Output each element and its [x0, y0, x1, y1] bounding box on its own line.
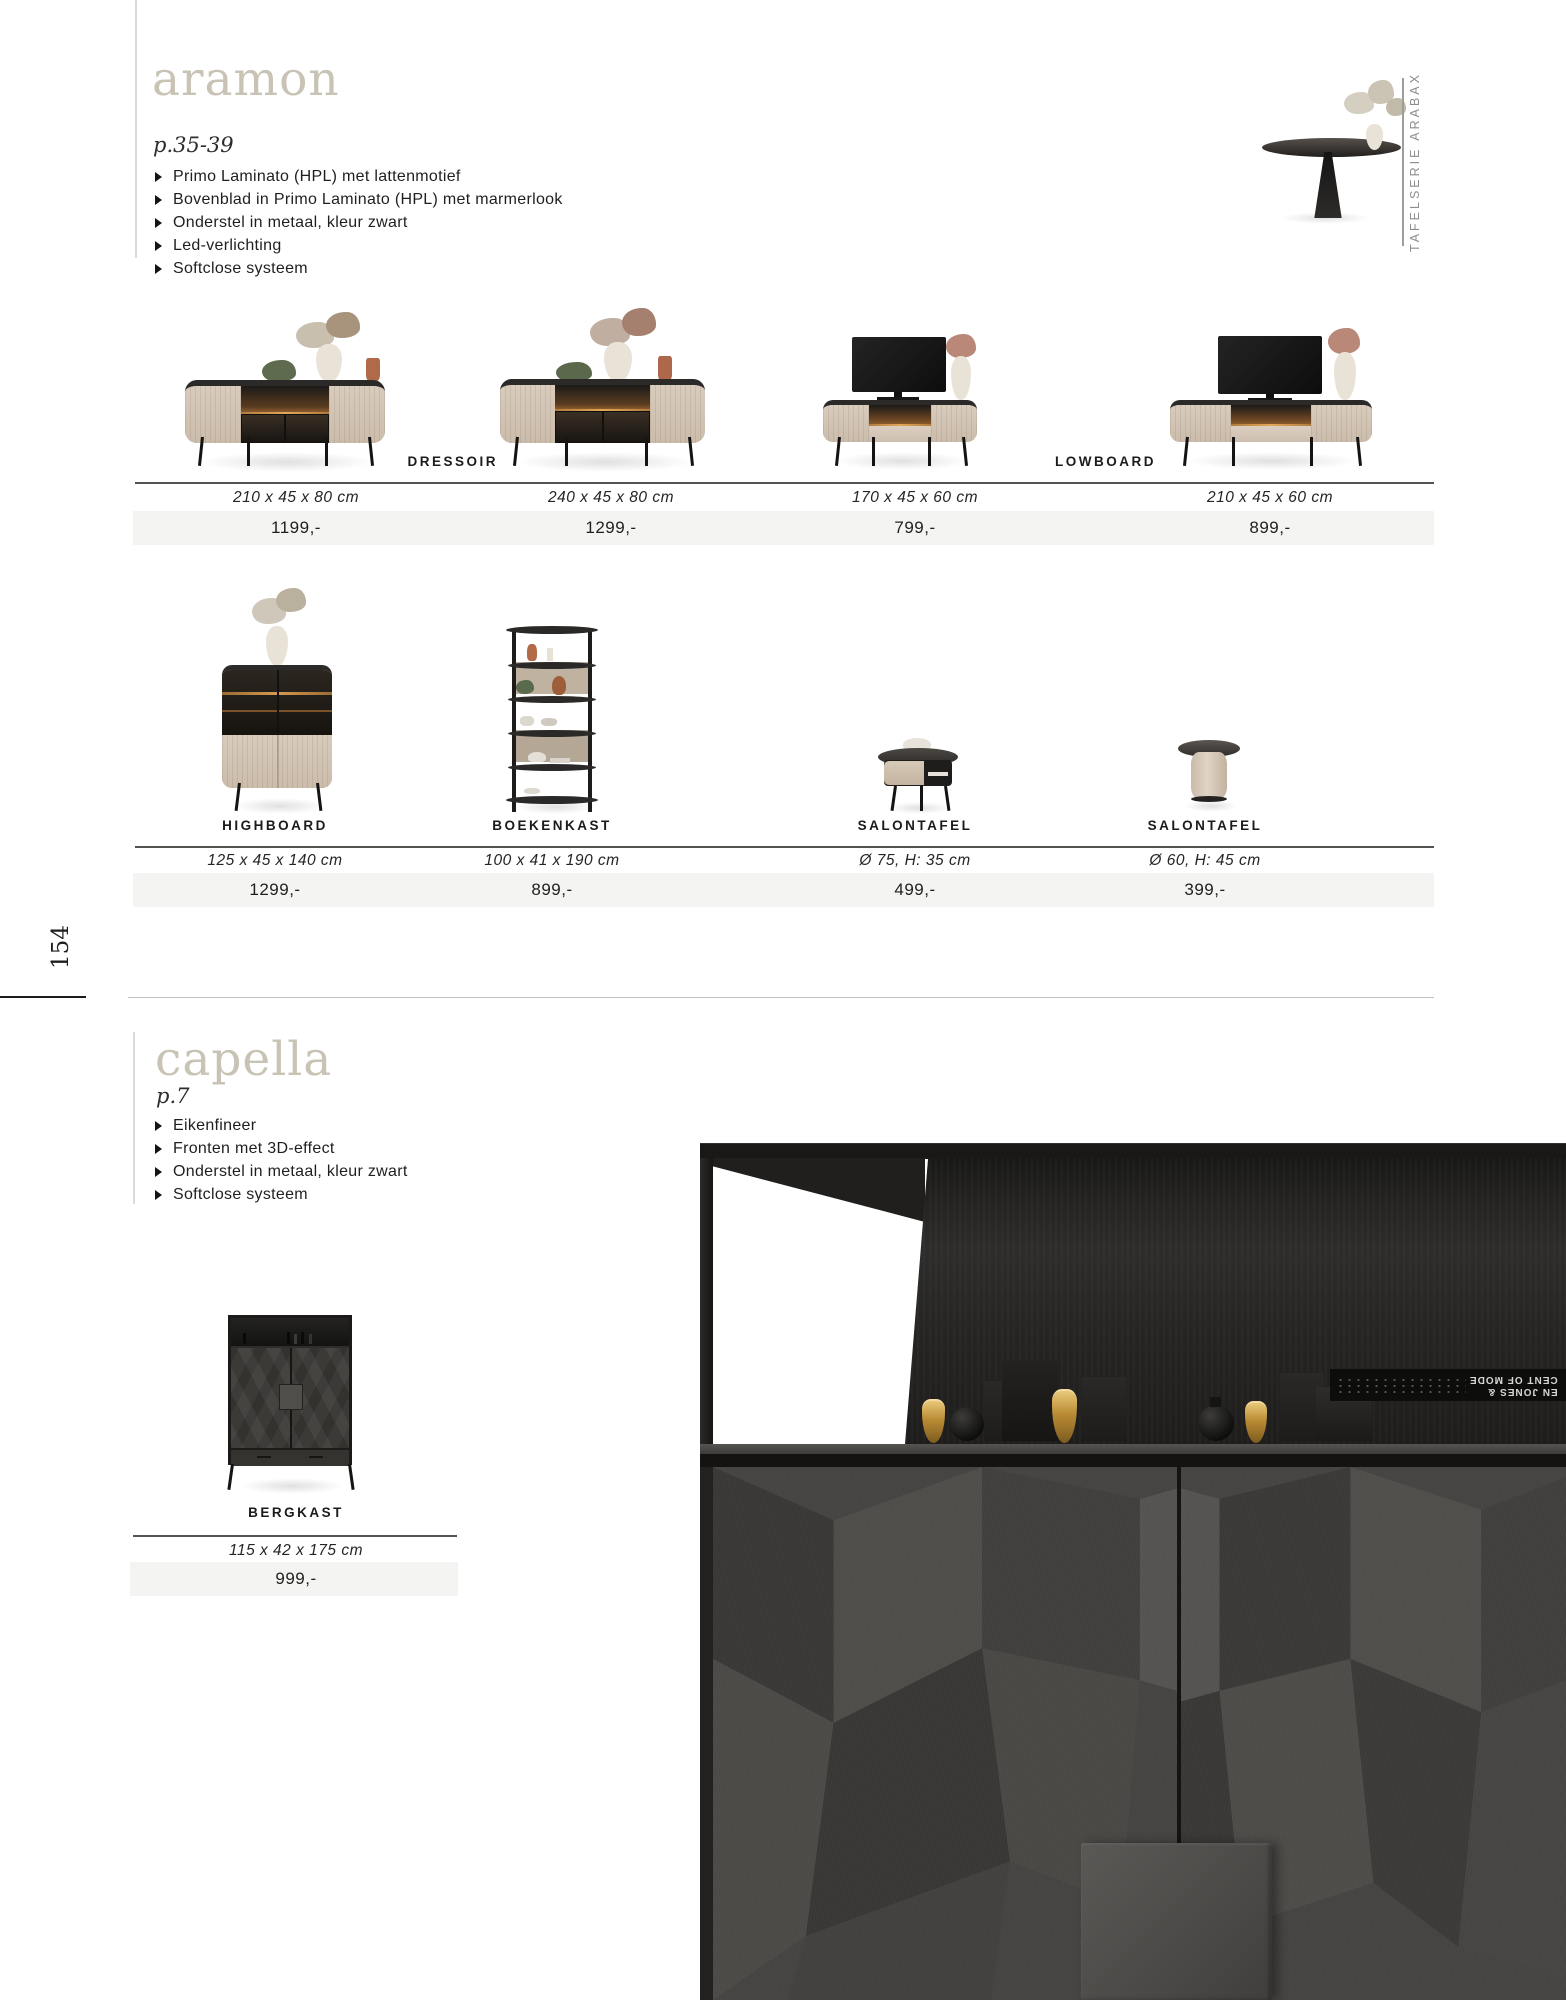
product-label: BOEKENKAST: [472, 818, 632, 833]
product-dims: 210 x 45 x 60 cm: [1160, 489, 1380, 507]
product-price: 399,-: [1095, 873, 1315, 907]
table-leg: [1310, 152, 1346, 218]
capella-page-ref: p.7: [156, 1084, 189, 1108]
capella-detail-photo: EN JONES & CENT OF MODE: [700, 1143, 1566, 2000]
table-foot: [1191, 796, 1227, 802]
product-dims: 115 x 42 x 175 cm: [186, 1542, 406, 1560]
product-price: 1299,-: [165, 873, 385, 907]
book-spine-line2: CENT OF MODE: [1469, 1373, 1558, 1385]
cabinet-body: [500, 379, 705, 443]
product-price: 1199,-: [186, 511, 406, 545]
cabinet-leg: [247, 437, 250, 466]
section-divider-vertical: [135, 0, 137, 258]
feature-item: Fronten met 3D-effect: [155, 1137, 408, 1160]
feature-item: Eikenfineer: [155, 1114, 408, 1137]
black-block: [1002, 1361, 1058, 1441]
feature-text: Softclose systeem: [173, 1186, 308, 1204]
product-dims: 125 x 45 x 140 cm: [165, 852, 385, 870]
bullet-triangle-icon: [155, 172, 162, 182]
photo-shelf-shadow: [700, 1454, 1566, 1467]
cabinet-body: [823, 400, 977, 442]
aramon-feature-list: Primo Laminato (HPL) met lattenmotief Bo…: [155, 165, 563, 280]
catalog-page: aramon p.35-39 Primo Laminato (HPL) met …: [0, 0, 1566, 2000]
product-price: 999,-: [186, 1562, 406, 1596]
feature-text: Eikenfineer: [173, 1117, 256, 1135]
shelf: [506, 796, 598, 804]
product-dims: 240 x 45 x 80 cm: [501, 489, 721, 507]
product-dims: 210 x 45 x 80 cm: [186, 489, 406, 507]
feature-item: Onderstel in metaal, kleur zwart: [155, 211, 563, 234]
photo-shelf-underside: [713, 1158, 925, 1222]
product-price: 799,-: [805, 511, 1025, 545]
cabinet-body: [185, 380, 385, 443]
group-label-dressoir: DRESSOIR: [378, 454, 498, 469]
decor-bowl: [541, 718, 557, 726]
bergkast-divider-line: [133, 1535, 457, 1537]
table-body: [884, 760, 952, 786]
decor-book: [550, 758, 570, 763]
product-price: 499,-: [805, 873, 1025, 907]
book-spine-line1: EN JONES &: [1469, 1385, 1558, 1397]
photo-top-frame: [700, 1143, 1566, 1159]
vase: [266, 626, 288, 666]
section-title-aramon: aramon: [152, 52, 340, 107]
bullet-triangle-icon: [155, 1121, 162, 1131]
vase: [316, 344, 342, 382]
shelf-post: [588, 630, 592, 812]
dried-flowers: [946, 334, 976, 358]
photo-left-frame-lower: [700, 1467, 713, 2000]
cabinet-leg: [872, 437, 875, 466]
shelf: [508, 730, 596, 737]
vase-neck: [1210, 1397, 1221, 1407]
patterned-doors: [231, 1348, 349, 1448]
feature-text: Led-verlichting: [173, 237, 282, 255]
door-handle: [279, 1384, 303, 1410]
product-price: 1299,-: [501, 511, 721, 545]
table-leg: [920, 786, 923, 811]
dried-flowers: [622, 308, 656, 336]
table-column: [1191, 752, 1227, 799]
black-block: [1082, 1377, 1126, 1441]
decor-plate: [524, 788, 540, 794]
feature-text: Primo Laminato (HPL) met lattenmotief: [173, 168, 461, 186]
feature-text: Bovenblad in Primo Laminato (HPL) met ma…: [173, 191, 563, 209]
row1-divider-line: [135, 482, 1434, 484]
feature-text: Softclose systeem: [173, 260, 308, 278]
product-dims: 170 x 45 x 60 cm: [805, 489, 1025, 507]
product-dims: 100 x 41 x 190 cm: [442, 852, 662, 870]
drawer: [231, 1448, 349, 1466]
frame-leg: [227, 1464, 234, 1490]
plant: [262, 360, 296, 382]
open-compartment: [231, 1318, 349, 1348]
product-label: SALONTAFEL: [1125, 818, 1285, 833]
black-vase: [1198, 1405, 1234, 1441]
cabinet-leg: [1232, 437, 1235, 466]
feature-item: Bovenblad in Primo Laminato (HPL) met ma…: [155, 188, 563, 211]
feature-item: Led-verlichting: [155, 234, 563, 257]
cabinet-body: [1170, 400, 1372, 442]
page-number: 154: [48, 903, 74, 969]
margin-rule-black: [0, 996, 86, 998]
bullet-triangle-icon: [155, 1190, 162, 1200]
product-price: 899,-: [442, 873, 662, 907]
dried-flowers: [1328, 328, 1360, 354]
shelf-post: [512, 630, 516, 812]
vase: [951, 356, 971, 400]
book: EN JONES & CENT OF MODE: [1330, 1369, 1566, 1401]
decor-vase: [527, 644, 537, 661]
decor-shell: [528, 752, 546, 762]
frame-post: [349, 1315, 352, 1465]
shelf: [508, 662, 596, 669]
feature-item: Onderstel in metaal, kleur zwart: [155, 1160, 408, 1183]
capella-feature-list: Eikenfineer Fronten met 3D-effect Onders…: [155, 1114, 408, 1206]
tv-screen: [1218, 336, 1322, 394]
product-dims: Ø 60, H: 45 cm: [1095, 852, 1315, 870]
row2-divider-line: [135, 846, 1434, 848]
cabinet-leg: [645, 437, 648, 466]
aramon-page-ref: p.35-39: [153, 133, 234, 157]
frame-leg: [348, 1464, 355, 1490]
photo-shelf-edge: [700, 1444, 1566, 1454]
feature-text: Onderstel in metaal, kleur zwart: [173, 214, 408, 232]
product-label: HIGHBOARD: [195, 818, 355, 833]
cabinet-leg: [1310, 437, 1313, 466]
flower-pot: [658, 356, 672, 381]
cabinet-leg: [928, 437, 931, 466]
feature-item: Primo Laminato (HPL) met lattenmotief: [155, 165, 563, 188]
group-label-lowboard: LOWBOARD: [1055, 454, 1175, 469]
bullet-triangle-icon: [155, 195, 162, 205]
vase: [604, 342, 632, 382]
bullet-triangle-icon: [155, 1167, 162, 1177]
cabinet-leg: [325, 437, 328, 466]
feature-item: Softclose systeem: [155, 1183, 408, 1206]
section-divider-vertical: [133, 1032, 135, 1204]
cabinet-leg: [565, 437, 568, 466]
feature-text: Onderstel in metaal, kleur zwart: [173, 1163, 408, 1181]
decor-candle: [547, 648, 553, 661]
photo-left-frame: [700, 1158, 713, 1444]
decor-plant: [516, 680, 534, 694]
product-price: 899,-: [1160, 511, 1380, 545]
tafelserie-label: TAFELSERIE ARABAX: [1408, 72, 1422, 252]
bullet-triangle-icon: [155, 241, 162, 251]
black-sphere: [950, 1407, 984, 1441]
shelf: [506, 626, 598, 634]
feature-item: Softclose systeem: [155, 257, 563, 280]
product-label: SALONTAFEL: [835, 818, 995, 833]
product-dims: Ø 75, H: 35 cm: [805, 852, 1025, 870]
shelf: [508, 764, 596, 771]
tv-screen: [852, 337, 946, 392]
decor-copper-vase: [552, 676, 566, 695]
vase: [1334, 352, 1356, 400]
bullet-triangle-icon: [155, 218, 162, 228]
product-label: BERGKAST: [216, 1505, 376, 1520]
cabinet-body: [222, 665, 332, 788]
bullet-triangle-icon: [155, 264, 162, 274]
flower-pot: [366, 358, 380, 381]
photo-door-handle-plate: [1081, 1843, 1272, 2000]
dried-flowers: [276, 588, 306, 612]
decor-bowl: [520, 716, 534, 726]
section-break-rule: [128, 997, 1434, 998]
bullet-triangle-icon: [155, 1144, 162, 1154]
teaser-divider-line: [1402, 78, 1404, 246]
feature-text: Fronten met 3D-effect: [173, 1140, 335, 1158]
shelf: [508, 696, 596, 703]
section-title-capella: capella: [155, 1032, 332, 1087]
dried-flowers: [326, 312, 360, 338]
